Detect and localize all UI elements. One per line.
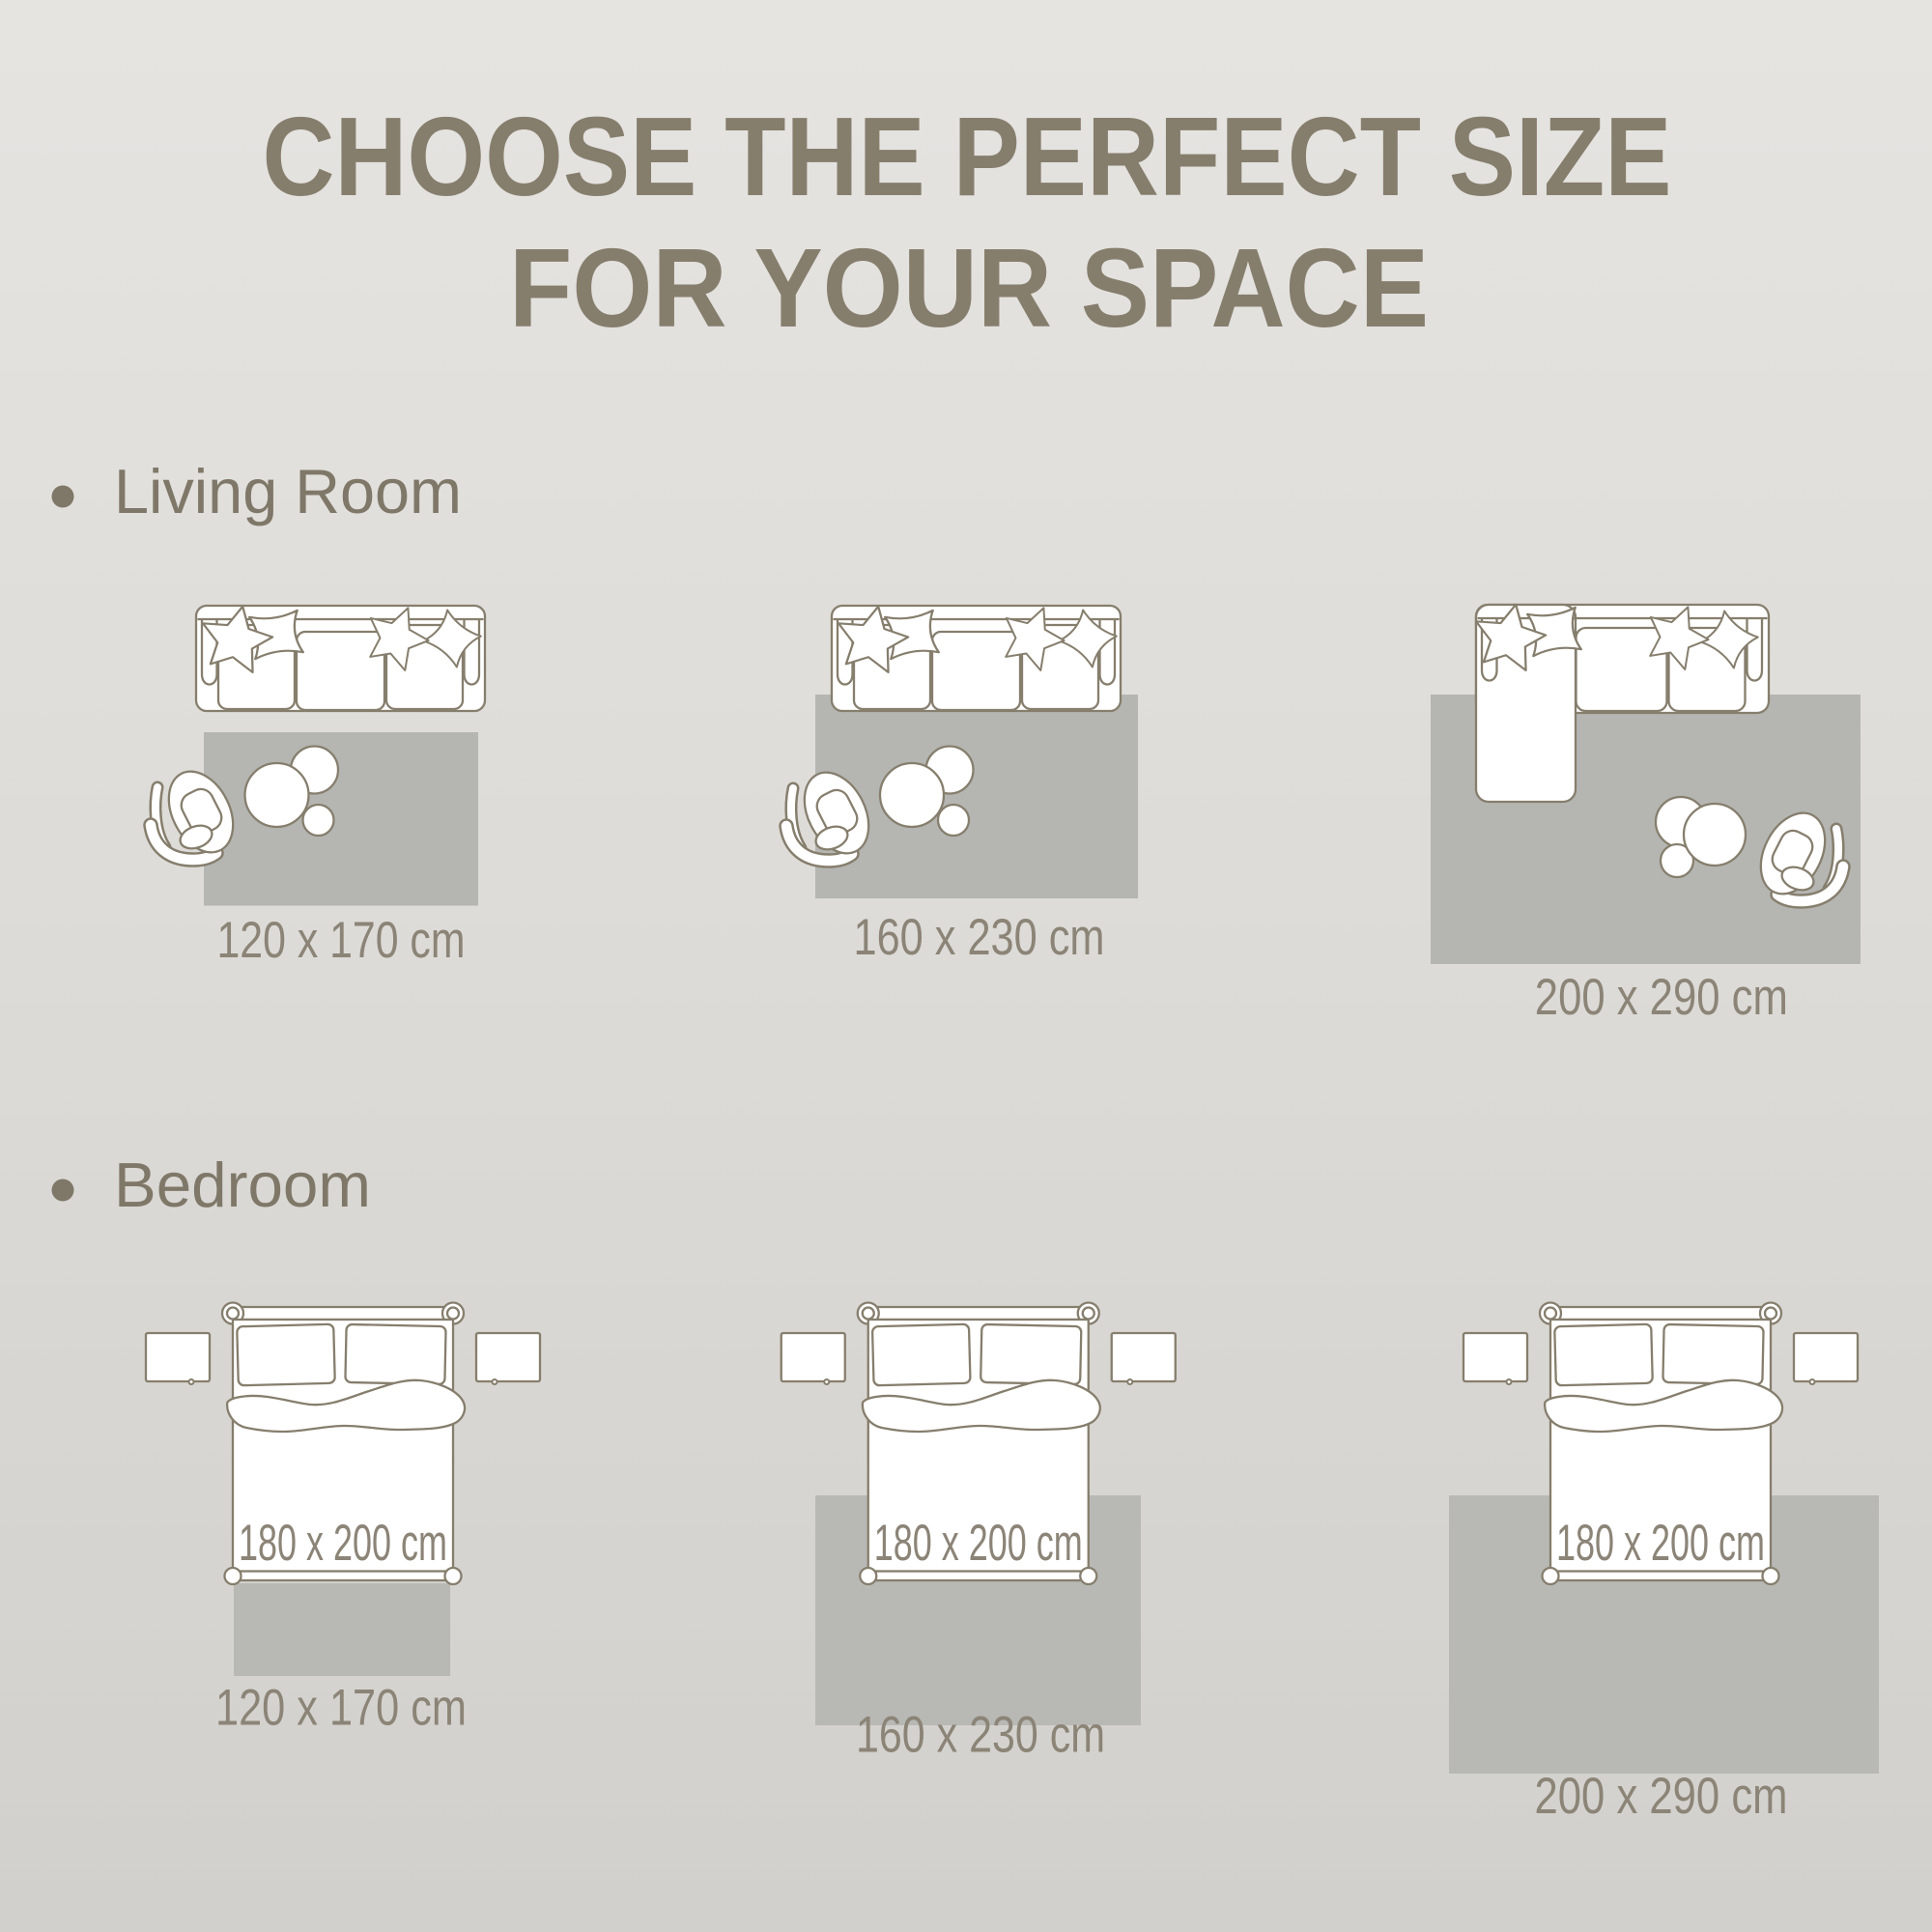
svg-text:FOR YOUR SPACE: FOR YOUR SPACE bbox=[509, 225, 1429, 351]
svg-text:120 x 170 cm: 120 x 170 cm bbox=[215, 1680, 467, 1737]
svg-text:160 x 230 cm: 160 x 230 cm bbox=[856, 1707, 1105, 1764]
svg-text:200 x 290 cm: 200 x 290 cm bbox=[1535, 969, 1788, 1026]
svg-text:Living Room: Living Room bbox=[114, 456, 462, 526]
svg-text:CHOOSE THE PERFECT SIZE: CHOOSE THE PERFECT SIZE bbox=[263, 94, 1672, 219]
svg-text:160 x 230 cm: 160 x 230 cm bbox=[854, 909, 1105, 966]
svg-text:200 x 290 cm: 200 x 290 cm bbox=[1535, 1768, 1788, 1825]
svg-text:Bedroom: Bedroom bbox=[114, 1150, 371, 1220]
svg-text:120 x 170 cm: 120 x 170 cm bbox=[217, 912, 466, 969]
